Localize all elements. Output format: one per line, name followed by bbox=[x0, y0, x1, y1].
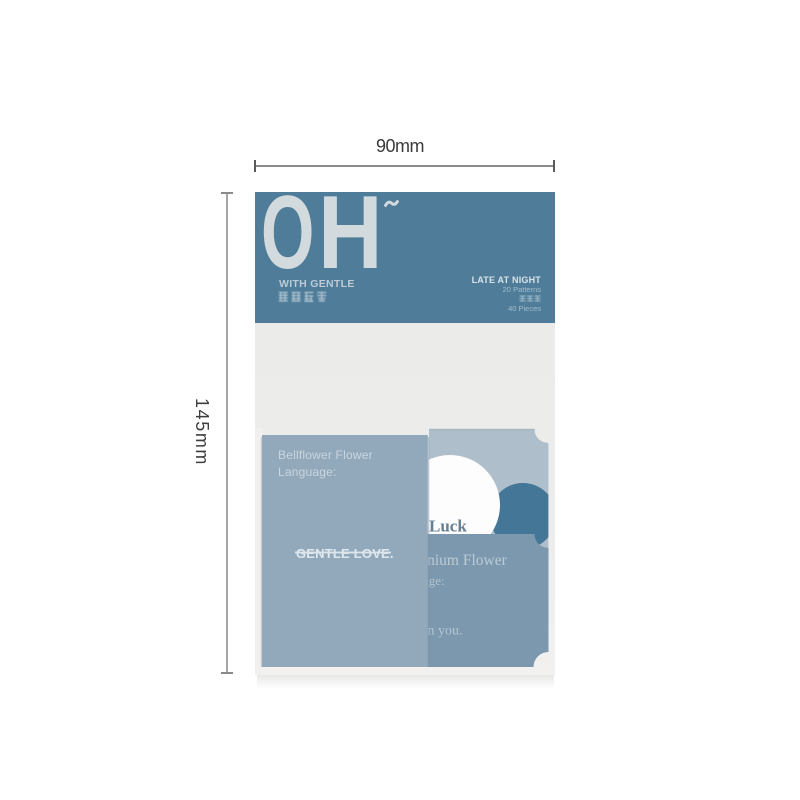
svg-text:Bellflower Flower: Bellflower Flower bbox=[278, 448, 373, 462]
svg-text:Language:: Language: bbox=[278, 465, 337, 479]
svg-text:GENTLE LOVE.: GENTLE LOVE. bbox=[296, 546, 394, 561]
